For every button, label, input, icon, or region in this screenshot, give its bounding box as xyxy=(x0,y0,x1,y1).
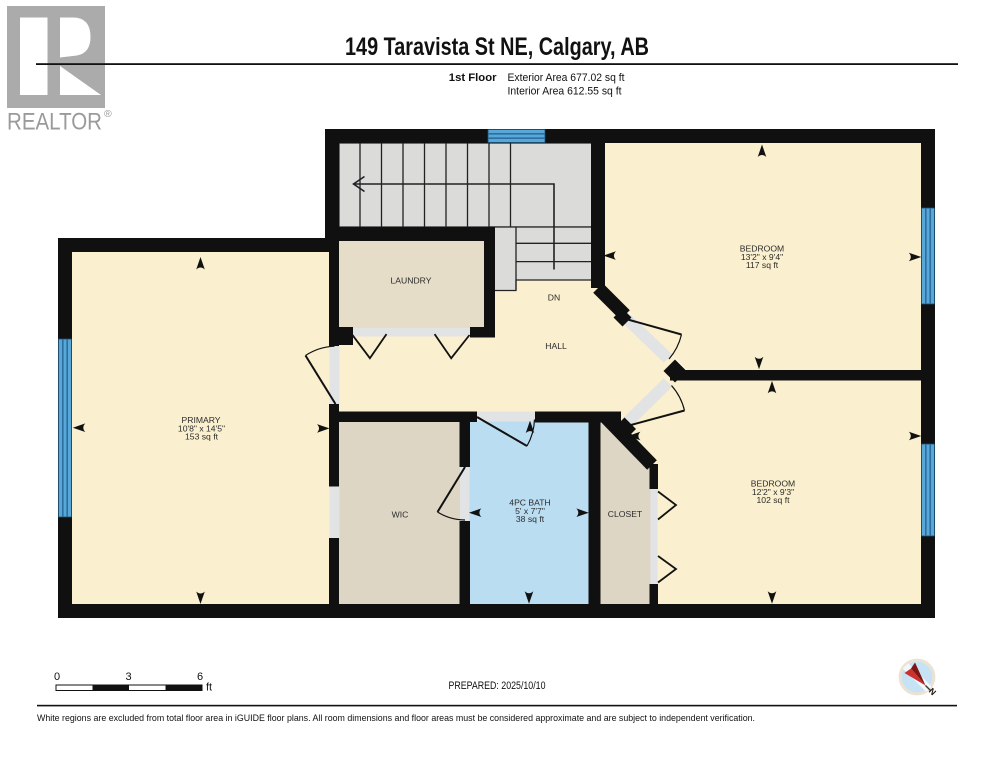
svg-text:38 sq ft: 38 sq ft xyxy=(516,514,545,524)
svg-text:1st Floor: 1st Floor xyxy=(449,72,497,84)
svg-text:®: ® xyxy=(104,108,112,120)
svg-text:3: 3 xyxy=(125,671,131,683)
svg-text:WIC: WIC xyxy=(392,509,409,519)
svg-text:Interior Area 612.55 sq ft: Interior Area 612.55 sq ft xyxy=(508,86,623,98)
svg-text:DN: DN xyxy=(548,292,560,302)
svg-text:HALL: HALL xyxy=(545,341,567,351)
svg-text:PREPARED: 2025/10/10: PREPARED: 2025/10/10 xyxy=(449,680,546,692)
svg-text:149 Taravista St NE, Calgary,: 149 Taravista St NE, Calgary, AB xyxy=(345,33,649,61)
svg-text:LAUNDRY: LAUNDRY xyxy=(391,276,432,286)
svg-text:Exterior Area 677.02 sq ft: Exterior Area 677.02 sq ft xyxy=(508,72,626,84)
svg-text:CLOSET: CLOSET xyxy=(608,509,643,519)
svg-text:ft: ft xyxy=(206,682,212,694)
svg-text:102 sq ft: 102 sq ft xyxy=(757,495,791,505)
svg-text:117 sq ft: 117 sq ft xyxy=(746,260,779,270)
svg-text:6: 6 xyxy=(197,671,203,683)
svg-text:White regions are excluded fro: White regions are excluded from total fl… xyxy=(37,713,755,724)
svg-text:0: 0 xyxy=(54,671,60,683)
svg-text:153 sq ft: 153 sq ft xyxy=(185,431,219,441)
svg-text:REALTOR: REALTOR xyxy=(7,109,102,136)
